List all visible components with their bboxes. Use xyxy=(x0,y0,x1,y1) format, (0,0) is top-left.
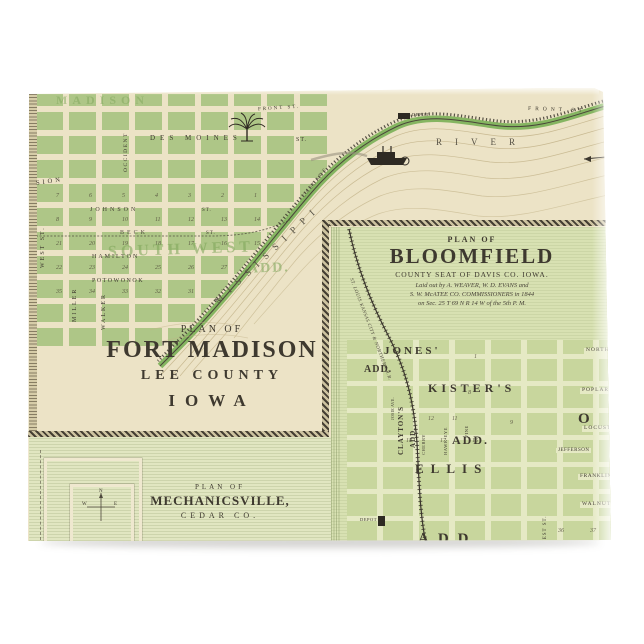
river-label-river: RIVER xyxy=(436,138,528,147)
bf-note1: Laid out by A. WEAVER, W. D. EVANS and xyxy=(362,283,582,290)
bf-addition-jones-add: ADD. xyxy=(364,365,392,375)
bf-plan-of: PLAN OF xyxy=(362,236,582,244)
street-label-beck: BECK xyxy=(120,230,148,236)
fm-county: LEE COUNTY xyxy=(92,369,332,383)
mech-title: MECHANICSVILLE, xyxy=(120,494,320,507)
mech-plan-of: PLAN OF xyxy=(120,484,320,491)
bf-addition-claytons: CLAYTON'S xyxy=(398,406,405,455)
street-label-vine: VINE xyxy=(465,425,470,438)
street-label-front-st: FRONT ST. xyxy=(528,107,591,115)
mech-county: CEDAR CO. xyxy=(120,512,320,520)
bf-note2: S. W. McATEE CO. COMMISSIONERS in 1844 xyxy=(362,292,582,299)
street-label-cherry: CHERRY xyxy=(422,434,427,455)
street-label-west-st: WEST ST. xyxy=(40,226,46,268)
fm-state: IOWA xyxy=(92,392,332,409)
bf-subtitle: COUNTY SEAT OF DAVIS CO. IOWA. xyxy=(362,271,582,279)
street-label-potowonok: POTOWONOK xyxy=(92,278,144,284)
bf-addition-jones: JONES' xyxy=(384,346,441,357)
street-label-st: ST. xyxy=(296,137,307,143)
product-photo: 7654321891011121314212019181716152223242… xyxy=(0,0,644,644)
bf-title: BLOOMFIELD xyxy=(362,246,582,267)
compass-w-label: W xyxy=(82,502,87,507)
street-label-johnson: JOHNSON xyxy=(90,207,138,213)
bf-addition-kisters: KISTER'S xyxy=(428,382,515,394)
compass-e-label: E xyxy=(114,502,117,507)
street-label-st: ST. xyxy=(206,231,216,236)
street-label-des-moines: DES MOINES xyxy=(150,135,242,142)
fm-plan-of: PLAN OF xyxy=(92,325,332,335)
fm-addition-madison: MADISON xyxy=(56,94,149,106)
street-label-occident: OCCIDENT xyxy=(124,132,130,172)
fm-depot-label: DEPOT xyxy=(412,113,429,118)
bf-addition-ellis: ELLIS xyxy=(415,462,488,475)
bf-addition-kisters-add: ADD. xyxy=(452,434,489,446)
street-label-jefferson: JEFFERSON xyxy=(556,448,591,453)
bf-addition-claytons-add: ADD. xyxy=(410,427,417,448)
fm-title: FORT MADISON xyxy=(92,338,332,362)
bf-depot-label: DEPOT xyxy=(360,518,377,523)
street-label-miller: MILLER xyxy=(72,288,78,322)
street-label-hawkeye: HAWK-EYE xyxy=(444,427,449,455)
street-label-front-st: FRONT ST. xyxy=(258,105,301,113)
street-label-division: SION xyxy=(36,177,64,187)
street-label-josie-ave: JOSIE AVE. xyxy=(391,397,395,420)
card-edge-highlight xyxy=(592,88,612,541)
compass-n-label: N xyxy=(99,489,103,494)
bf-note3: on Sec. 25 T 69 N R 14 W of the 5th P. M… xyxy=(362,301,582,308)
street-label-st: ST. xyxy=(202,208,212,213)
fm-addition-south-west: SOUTH WEST xyxy=(108,239,254,260)
card-top-edge xyxy=(29,88,599,95)
street-label-walker: WALKER xyxy=(101,293,107,330)
shore-label-cascade: CASCADE xyxy=(302,167,329,200)
